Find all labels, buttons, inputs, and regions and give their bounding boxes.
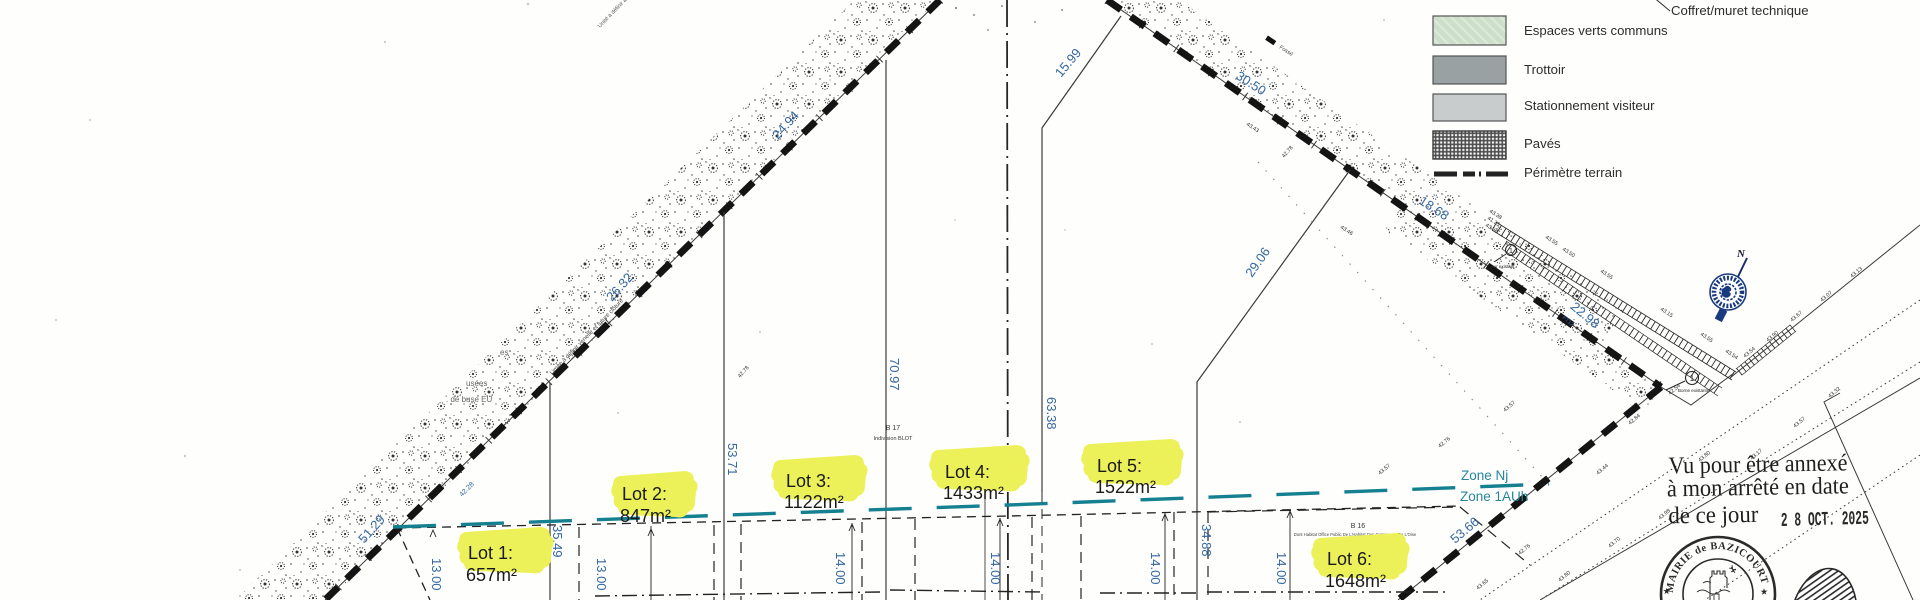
svg-text:2 8 OCT. 2025: 2 8 OCT. 2025 <box>1781 508 1870 532</box>
svg-text:Lot 2:: Lot 2: <box>622 484 667 504</box>
svg-text:Zone Nj: Zone Nj <box>1461 468 1508 483</box>
svg-text:34.88: 34.88 <box>1199 524 1214 557</box>
svg-text:Lot 6:: Lot 6: <box>1327 549 1372 569</box>
svg-text:657m²: 657m² <box>466 565 517 585</box>
svg-text:Borne existante: Borne existante <box>1678 388 1710 393</box>
svg-text:Trottoir: Trottoir <box>1524 62 1566 77</box>
svg-text:14.00: 14.00 <box>1148 552 1163 585</box>
svg-text:Périmètre terrain: Périmètre terrain <box>1524 165 1622 180</box>
svg-text:13.00: 13.00 <box>594 558 609 591</box>
svg-text:14.00: 14.00 <box>1274 552 1289 585</box>
svg-text:B 17: B 17 <box>886 425 901 432</box>
svg-text:1522m²: 1522m² <box>1095 477 1156 497</box>
svg-text:13.00: 13.00 <box>429 558 444 591</box>
svg-text:1: 1 <box>1509 248 1513 255</box>
svg-text:Coffret/muret technique: Coffret/muret technique <box>1671 3 1809 18</box>
svg-text:Lot 1:: Lot 1: <box>468 543 513 563</box>
svg-text:Stationnement visiteur: Stationnement visiteur <box>1524 98 1655 113</box>
svg-text:53.71: 53.71 <box>725 443 740 476</box>
svg-text:1: 1 <box>1690 374 1695 383</box>
svg-text:de ce jour: de ce jour <box>1668 502 1758 530</box>
svg-text:N: N <box>1736 248 1746 260</box>
svg-text:1648m²: 1648m² <box>1325 571 1386 591</box>
svg-text:Indivision BLOT: Indivision BLOT <box>874 436 913 442</box>
svg-text:1122m²: 1122m² <box>784 492 844 512</box>
svg-text:70.97: 70.97 <box>887 358 902 391</box>
svg-text:B 16: B 16 <box>1351 523 1366 530</box>
svg-text:. de buse EU: . de buse EU <box>446 395 492 404</box>
svg-text:es: es <box>500 348 508 357</box>
svg-text:1433m²: 1433m² <box>943 483 1004 503</box>
svg-text:Lot 3:: Lot 3: <box>786 471 831 491</box>
svg-text:Lot 5:: Lot 5: <box>1097 456 1142 476</box>
svg-text:63.38: 63.38 <box>1044 397 1059 430</box>
svg-text:14.00: 14.00 <box>988 552 1003 585</box>
svg-text:à mon arrêté en date: à mon arrêté en date <box>1667 473 1849 502</box>
svg-text:Pavés: Pavés <box>1524 136 1561 151</box>
svg-text:14.00: 14.00 <box>833 552 848 585</box>
svg-text:Espaces verts communs: Espaces verts communs <box>1524 23 1668 38</box>
svg-text:mur existant: mur existant <box>1490 264 1515 269</box>
svg-text:Zone 1AUh: Zone 1AUh <box>1460 489 1528 504</box>
svg-text:847m²: 847m² <box>620 506 671 526</box>
svg-text:Lot 4:: Lot 4: <box>945 462 990 482</box>
svg-text:usées: usées <box>466 379 487 388</box>
